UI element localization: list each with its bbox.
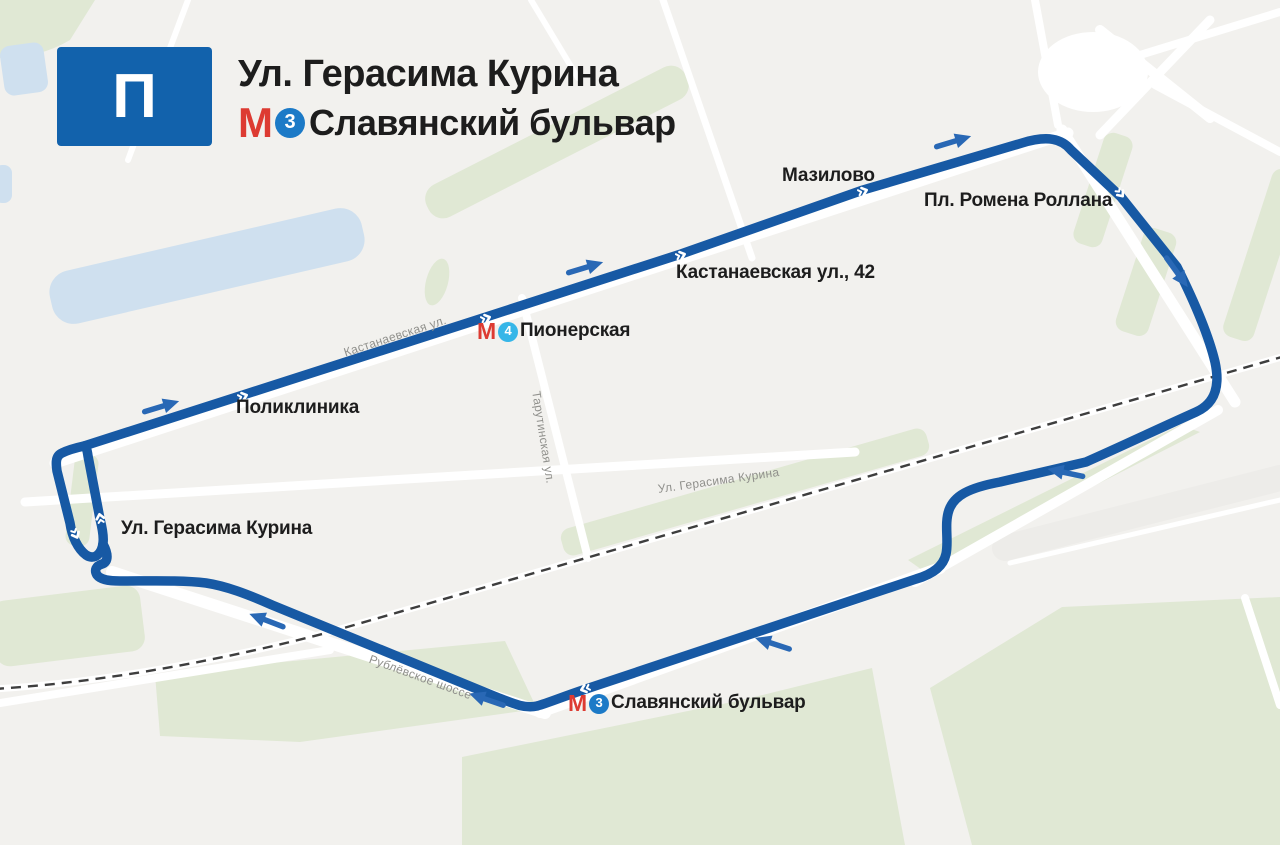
stop-label-poliklinika: Поликлиника xyxy=(236,398,359,419)
route-number-badge: П xyxy=(57,47,212,146)
stop-label-gerasima-kurina: Ул. Герасима Курина xyxy=(121,519,312,540)
route-subtitle: М 3 Славянский бульвар xyxy=(238,102,676,144)
stop-label-slavyansky-bulvar: М 3 Славянский бульвар xyxy=(568,692,806,715)
metro-m-icon: М xyxy=(477,320,496,343)
stop-label-romena-rollana: Пл. Ромена Роллана xyxy=(924,191,1112,212)
route-title: Ул. Герасима Курина xyxy=(238,54,676,96)
metro-line3-badge: 3 xyxy=(275,108,305,138)
metro-line4-badge: 4 xyxy=(498,322,518,342)
metro-m-icon: М xyxy=(568,692,587,715)
header: Ул. Герасима Курина М 3 Славянский бульв… xyxy=(238,54,676,144)
route-subtitle-text: Славянский бульвар xyxy=(309,102,676,144)
stop-label-pionerskaya: М 4 Пионерская xyxy=(477,320,630,343)
stop-label-kastanaevskaya-42: Кастанаевская ул., 42 xyxy=(676,263,875,284)
stop-label-mazilovo: Мазилово xyxy=(782,166,875,187)
route-map-page: { "header": { "route_badge": "П", "title… xyxy=(0,0,1280,845)
stop-label-text: Пионерская xyxy=(520,321,630,342)
metro-m-icon: М xyxy=(238,104,273,142)
stop-label-text: Славянский бульвар xyxy=(611,693,806,714)
metro-line3-badge: 3 xyxy=(589,694,609,714)
